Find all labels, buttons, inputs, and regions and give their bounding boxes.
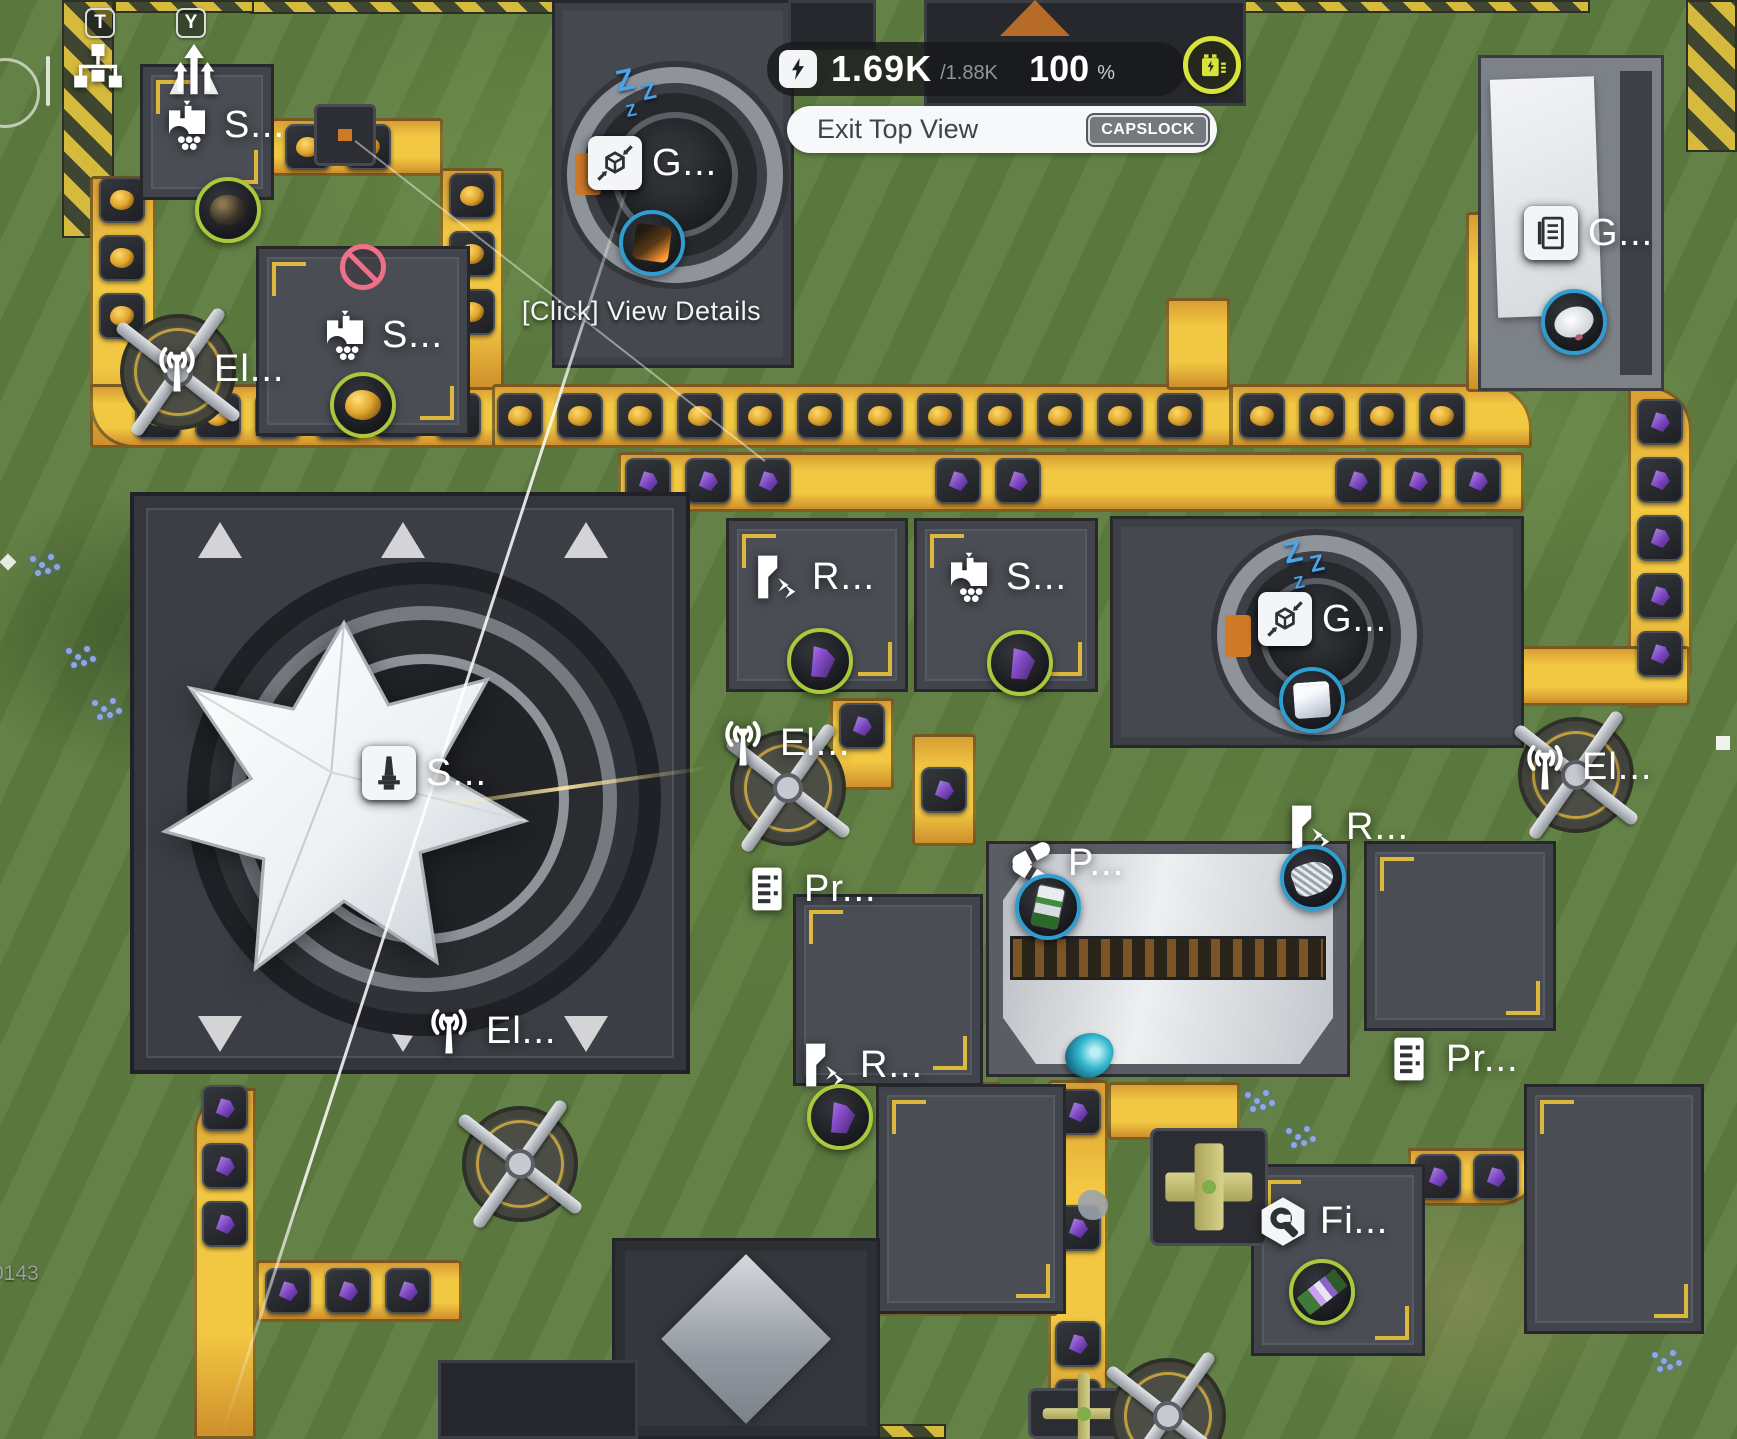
spire-edge-triangle: [564, 1016, 608, 1052]
belt-cargo-tile: [449, 173, 495, 219]
belt-cargo-tile: [202, 1085, 248, 1131]
exit-top-view-button[interactable]: Exit Top View CAPSLOCK: [787, 106, 1217, 153]
building-name: Pr...: [804, 870, 877, 908]
item-white-cube: [1293, 681, 1331, 719]
antenna-icon: [1518, 740, 1572, 794]
power-current: 1.69K: [831, 48, 932, 90]
ore-purple: [212, 1212, 238, 1236]
belt-cargo-tile: [1239, 393, 1285, 439]
flower-patch: [1295, 1134, 1301, 1140]
ore-gold: [110, 248, 134, 268]
building-label-pylon-mid-left[interactable]: El...: [716, 716, 850, 770]
belt-cargo-tile: [557, 393, 603, 439]
flower-patch: [35, 570, 41, 576]
item-gold-ore: [345, 390, 381, 420]
flower-patch: [1661, 1358, 1667, 1364]
ore-gold: [1048, 406, 1072, 426]
ore-purple: [1647, 526, 1673, 550]
ore-gold: [1430, 406, 1454, 426]
building-label-pylon-mid-right[interactable]: El...: [1518, 740, 1652, 794]
belt-cargo-tile: [1055, 1321, 1101, 1367]
flower-patch: [1657, 1366, 1663, 1372]
flower-patch: [1269, 1100, 1275, 1106]
map-marker: [0, 554, 16, 571]
item-dish: [1550, 302, 1597, 343]
antenna-icon: [716, 716, 770, 770]
blocked-icon: [340, 244, 386, 290]
belt-cargo-tile: [385, 1268, 431, 1314]
belt-cargo-tile: [745, 458, 791, 504]
flower-patch: [1286, 1128, 1292, 1134]
building-name: S...: [426, 754, 487, 792]
flower-patch: [1291, 1142, 1297, 1148]
building-label-grinder-mid[interactable]: G...: [1258, 592, 1387, 646]
belt-cargo-tile: [1637, 573, 1683, 619]
pylon-hub: [773, 773, 803, 803]
item-silver-coil: [1289, 856, 1338, 900]
view-details-tooltip: [Click] View Details: [522, 296, 761, 327]
building-label-depot-top-right[interactable]: G...: [1524, 206, 1653, 260]
ore-purple: [755, 469, 781, 493]
output-item-ring: [330, 372, 396, 438]
building-name: R...: [1346, 808, 1409, 846]
splitter-center: [1077, 1407, 1091, 1421]
flower-patch: [110, 698, 116, 704]
flower-patch: [1245, 1092, 1251, 1098]
ore-gold: [1168, 406, 1192, 426]
output-item-ring: [1289, 1259, 1355, 1325]
ore-purple: [1425, 1165, 1451, 1189]
tower-icon: [362, 746, 416, 800]
ore-gold: [110, 190, 134, 210]
platform-plain[interactable]: [1364, 841, 1556, 1031]
building-name: R...: [812, 558, 875, 596]
building-name: G...: [1322, 600, 1387, 638]
flower-patch: [107, 712, 113, 718]
document-icon: [1524, 206, 1578, 260]
silo-icon: [160, 98, 214, 152]
wrench-icon: [1256, 1194, 1310, 1248]
platform-plain[interactable]: [876, 1084, 1066, 1314]
item-purple-crystal: [814, 1091, 865, 1142]
belt-cargo-tile: [1473, 1154, 1519, 1200]
belt-cargo-tile: [325, 1268, 371, 1314]
belt-cargo-tile: [1335, 458, 1381, 504]
ore-gold: [1370, 406, 1394, 426]
flower-patch: [101, 706, 107, 712]
ore-purple: [1065, 1216, 1091, 1240]
ore-purple: [1647, 584, 1673, 608]
belt-cargo-tile: [797, 393, 843, 439]
flower-patch: [84, 646, 90, 652]
output-item-ring: [787, 628, 853, 694]
building-label-pylon-bottom-left[interactable]: El...: [422, 1004, 556, 1058]
building-label-refiner-bottom[interactable]: R...: [796, 1038, 923, 1092]
ore-purple: [1647, 468, 1673, 492]
flower-patch: [1260, 1104, 1266, 1110]
ore-purple: [1345, 469, 1371, 493]
flower-patch: [1263, 1090, 1269, 1096]
belt-cargo-tile: [995, 458, 1041, 504]
ore-gold: [568, 406, 592, 426]
sleep-indicator: ZZZ: [616, 66, 676, 126]
flower-patch: [48, 554, 54, 560]
building-name: G...: [652, 144, 717, 182]
item-purple-crystal: [794, 635, 845, 686]
flower-patch: [1254, 1098, 1260, 1104]
pylon-hub: [505, 1149, 535, 1179]
belt-cargo-tile: [737, 393, 783, 439]
pylon-hub: [1153, 1401, 1183, 1431]
building-label-pylon-left[interactable]: El...: [150, 342, 284, 396]
ascend-icon[interactable]: [163, 40, 225, 102]
ore-gold: [808, 406, 832, 426]
belt-cargo-tile: [1359, 393, 1405, 439]
power-capacity: /1.88K: [940, 54, 998, 85]
refinery-icon: [748, 550, 802, 604]
flower-patch: [71, 662, 77, 668]
power-percent-symbol: %: [1097, 54, 1115, 85]
output-item-ring: [1279, 667, 1345, 733]
ore-gold: [1250, 406, 1274, 426]
output-item-ring: [1280, 845, 1346, 911]
belt-cargo-tile: [1637, 399, 1683, 445]
ore-gold: [628, 406, 652, 426]
ore-purple: [335, 1279, 361, 1303]
ore-gold: [748, 406, 772, 426]
building-label-processor-left[interactable]: Pr...: [740, 862, 877, 916]
grinder-wedge: [1225, 615, 1251, 657]
output-item-ring: [807, 1084, 873, 1150]
platform-plain[interactable]: [1251, 1164, 1425, 1356]
belt-cargo-tile: [1097, 393, 1143, 439]
belt-cargo-tile: [935, 458, 981, 504]
building-name: G...: [1588, 214, 1653, 252]
splitter-center: [1202, 1180, 1216, 1194]
ore-purple: [1647, 642, 1673, 666]
building-name: R...: [860, 1046, 923, 1084]
edge-arc: [0, 58, 40, 128]
ore-purple: [1005, 469, 1031, 493]
hazard-stripe-wall: [1240, 0, 1590, 13]
ore-purple: [1065, 1332, 1091, 1356]
flower-patch: [1652, 1352, 1658, 1358]
exit-top-view-label: Exit Top View: [817, 114, 978, 145]
sleep-indicator: ZZZ: [1284, 538, 1344, 598]
diamond-roof: [661, 1254, 831, 1424]
keycap-t[interactable]: T: [85, 8, 115, 38]
spire-edge-triangle: [198, 522, 242, 558]
flower-patch: [30, 556, 36, 562]
belt-cargo-tile: [617, 393, 663, 439]
building-name: El...: [780, 724, 850, 762]
rack-icon: [1382, 1032, 1436, 1086]
belt-cargo-tile: [685, 458, 731, 504]
building-name: El...: [1582, 748, 1652, 786]
ore-purple: [212, 1096, 238, 1120]
item-circuit-board: [1295, 1267, 1349, 1317]
flower-patch: [92, 700, 98, 706]
building-name: Pr...: [1446, 1040, 1519, 1078]
output-item-ring: [1015, 874, 1081, 940]
battery-icon[interactable]: [1183, 36, 1241, 94]
ore-purple: [1647, 410, 1673, 434]
pylon-pad: [462, 1106, 578, 1222]
flower-patch: [1301, 1140, 1307, 1146]
belt-cargo-tile: [497, 393, 543, 439]
version-text: 0143: [0, 1262, 39, 1286]
building-name: El...: [214, 350, 284, 388]
flower-patch: [54, 564, 60, 570]
flower-patch: [97, 714, 103, 720]
belt-cargo-tile: [202, 1201, 248, 1247]
building-label-storehouse-top-left[interactable]: S...: [160, 98, 285, 152]
output-item-ring: [1541, 289, 1607, 355]
building-name: S...: [1006, 558, 1067, 596]
flower-patch: [39, 562, 45, 568]
flower-patch: [90, 656, 96, 662]
edge-bar: [46, 56, 50, 106]
item-battery-cell: [1030, 884, 1066, 931]
building-label-storehouse-mid[interactable]: S...: [942, 550, 1067, 604]
belt-cargo-tile: [1157, 393, 1203, 439]
output-item-ring: [987, 630, 1053, 696]
item-orange-cube: [632, 223, 673, 264]
ore-purple: [1405, 469, 1431, 493]
compress-cube-icon: [1258, 592, 1312, 646]
ore-gold: [1310, 406, 1334, 426]
antenna-icon: [422, 1004, 476, 1058]
output-item-ring: [619, 210, 685, 276]
platform-diamond[interactable]: [612, 1238, 880, 1439]
building-name: S...: [224, 106, 285, 144]
belt-cargo-tile: [1037, 393, 1083, 439]
ore-purple: [695, 469, 721, 493]
ore-gold: [508, 406, 532, 426]
ore-purple: [1065, 1100, 1091, 1124]
belt-cargo-tile: [1395, 458, 1441, 504]
ore-purple: [849, 714, 875, 738]
output-item-ring: [195, 177, 261, 243]
ore-gold: [460, 186, 484, 206]
item-dark-ore: [210, 195, 246, 225]
flower-patch: [81, 660, 87, 666]
spire-edge-triangle: [198, 1016, 242, 1052]
belt-cargo-tile: [1455, 458, 1501, 504]
silo-icon: [942, 550, 996, 604]
belt-cargo-tile: [99, 177, 145, 223]
conveyor-belt: [1166, 298, 1230, 390]
flower-patch: [66, 648, 72, 654]
ore-gold: [928, 406, 952, 426]
flower-patch: [45, 568, 51, 574]
building-name: P...: [1068, 844, 1124, 882]
flower-patch: [75, 654, 81, 660]
ore-purple: [395, 1279, 421, 1303]
ore-purple: [1465, 469, 1491, 493]
power-status-bar: 1.69K /1.88K 100 %: [767, 42, 1185, 96]
rack-icon: [740, 862, 794, 916]
building-label-storehouse-blocked[interactable]: S...: [318, 308, 443, 362]
keycap-y[interactable]: Y: [176, 8, 206, 38]
platform-dark[interactable]: [438, 1360, 638, 1439]
map-marker: [1716, 736, 1730, 750]
belt-cargo-tile: [99, 235, 145, 281]
belt-cargo-tile: [1637, 515, 1683, 561]
pylon-pad: [1110, 1358, 1226, 1439]
belt-cargo-tile: [1419, 393, 1465, 439]
silo-icon: [318, 308, 372, 362]
belt-cargo-tile: [1299, 393, 1345, 439]
drone-unit: [1078, 1190, 1108, 1220]
org-chart-icon[interactable]: [72, 42, 124, 94]
belt-cargo-tile: [677, 393, 723, 439]
crystal-dome: [154, 614, 534, 994]
belt-cargo-tile: [921, 767, 967, 813]
spire-edge-triangle: [381, 522, 425, 558]
capslock-keybind: CAPSLOCK: [1088, 115, 1208, 145]
platform-splitter[interactable]: [1150, 1128, 1268, 1246]
machine-feed-row: [1010, 936, 1325, 980]
depot-panel: [1489, 76, 1602, 317]
flower-patch: [1310, 1136, 1316, 1142]
ore-gold: [868, 406, 892, 426]
building-label-grinder-top[interactable]: G...: [588, 136, 717, 190]
ore-gold: [1108, 406, 1132, 426]
flower-patch: [1304, 1126, 1310, 1132]
ore-purple: [275, 1279, 301, 1303]
hazard-stripe-wall: [1686, 0, 1737, 152]
platform-box[interactable]: [314, 104, 376, 166]
spire-edge-triangle: [564, 522, 608, 558]
conveyor-belt: [194, 1088, 256, 1439]
platform-plain[interactable]: [1524, 1084, 1704, 1334]
belt-cargo-tile: [202, 1143, 248, 1189]
flower-patch: [1667, 1364, 1673, 1370]
building-name: El...: [486, 1012, 556, 1050]
belt-cargo-tile: [1637, 631, 1683, 677]
building-name: S...: [382, 316, 443, 354]
ore-gold: [988, 406, 1012, 426]
belt-cargo-tile: [917, 393, 963, 439]
top-view-map: S...S...El...G...ZZZG...R...S...G...ZZZE…: [0, 0, 1737, 1439]
building-label-spire[interactable]: S...: [362, 746, 487, 800]
building-label-processor-right[interactable]: Pr...: [1382, 1032, 1519, 1086]
antenna-icon: [150, 342, 204, 396]
belt-cargo-tile: [977, 393, 1023, 439]
power-percent: 100: [1029, 48, 1089, 90]
ore-purple: [212, 1154, 238, 1178]
building-label-refiner-mid[interactable]: R...: [748, 550, 875, 604]
item-purple-crystal: [994, 637, 1045, 688]
building-label-fitter[interactable]: Fi...: [1256, 1194, 1388, 1248]
building-name: Fi...: [1320, 1202, 1388, 1240]
compress-cube-icon: [588, 136, 642, 190]
flower-patch: [1676, 1360, 1682, 1366]
lightning-icon: [779, 50, 817, 88]
belt-cargo-tile: [1637, 457, 1683, 503]
ore-purple: [635, 469, 661, 493]
belt-cargo-tile: [857, 393, 903, 439]
flower-patch: [1670, 1350, 1676, 1356]
ore-purple: [931, 778, 957, 802]
flower-patch: [1250, 1106, 1256, 1112]
ore-purple: [945, 469, 971, 493]
ore-purple: [1483, 1165, 1509, 1189]
flower-patch: [116, 708, 122, 714]
